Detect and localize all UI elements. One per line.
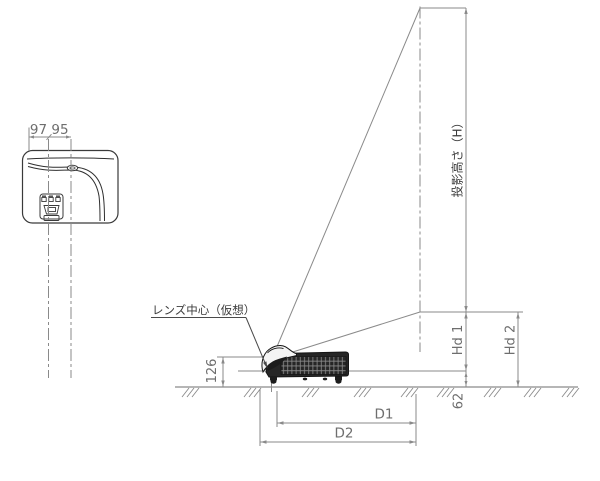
lens-height-dimension: 126: [205, 357, 225, 387]
technical-drawing: 投影高さ（H） Hd 1 62 Hd 2 126: [0, 0, 600, 481]
d1-label: D1: [375, 407, 394, 423]
floor-offset-value: 62: [452, 393, 467, 410]
lens-center-label: レンズ中心（仮想）: [152, 303, 255, 317]
dim-97: 97: [30, 122, 47, 138]
top-view-dimensions: 97 95: [29, 122, 71, 151]
hd1-dimension: Hd 1: [451, 312, 468, 371]
vent-grille: [281, 357, 346, 375]
hd2-label: Hd 2: [504, 325, 519, 355]
hd2-dimension: Hd 2: [504, 312, 520, 387]
floor: [175, 387, 579, 397]
hd1-label: Hd 1: [451, 325, 466, 355]
front-foot: [271, 379, 277, 383]
projection-height-dimension: 投影高さ（H）: [420, 8, 468, 312]
projection-height-label: 投影高さ（H）: [450, 116, 465, 197]
projection-rays: [272, 8, 420, 359]
d2-label: D2: [335, 426, 354, 442]
dim-95: 95: [51, 122, 68, 138]
projector-top-view: [23, 151, 119, 224]
floor-hatching: [182, 388, 579, 397]
projector-side-view: [262, 345, 349, 383]
lens-height-value: 126: [205, 359, 220, 384]
lens-top-view: [67, 165, 77, 170]
throw-distance-dimensions: D1 D2: [260, 390, 416, 447]
drawing-canvas: 投影高さ（H） Hd 1 62 Hd 2 126: [0, 0, 600, 481]
floor-offset-dimension: 62: [452, 371, 468, 409]
rear-foot: [336, 379, 342, 383]
